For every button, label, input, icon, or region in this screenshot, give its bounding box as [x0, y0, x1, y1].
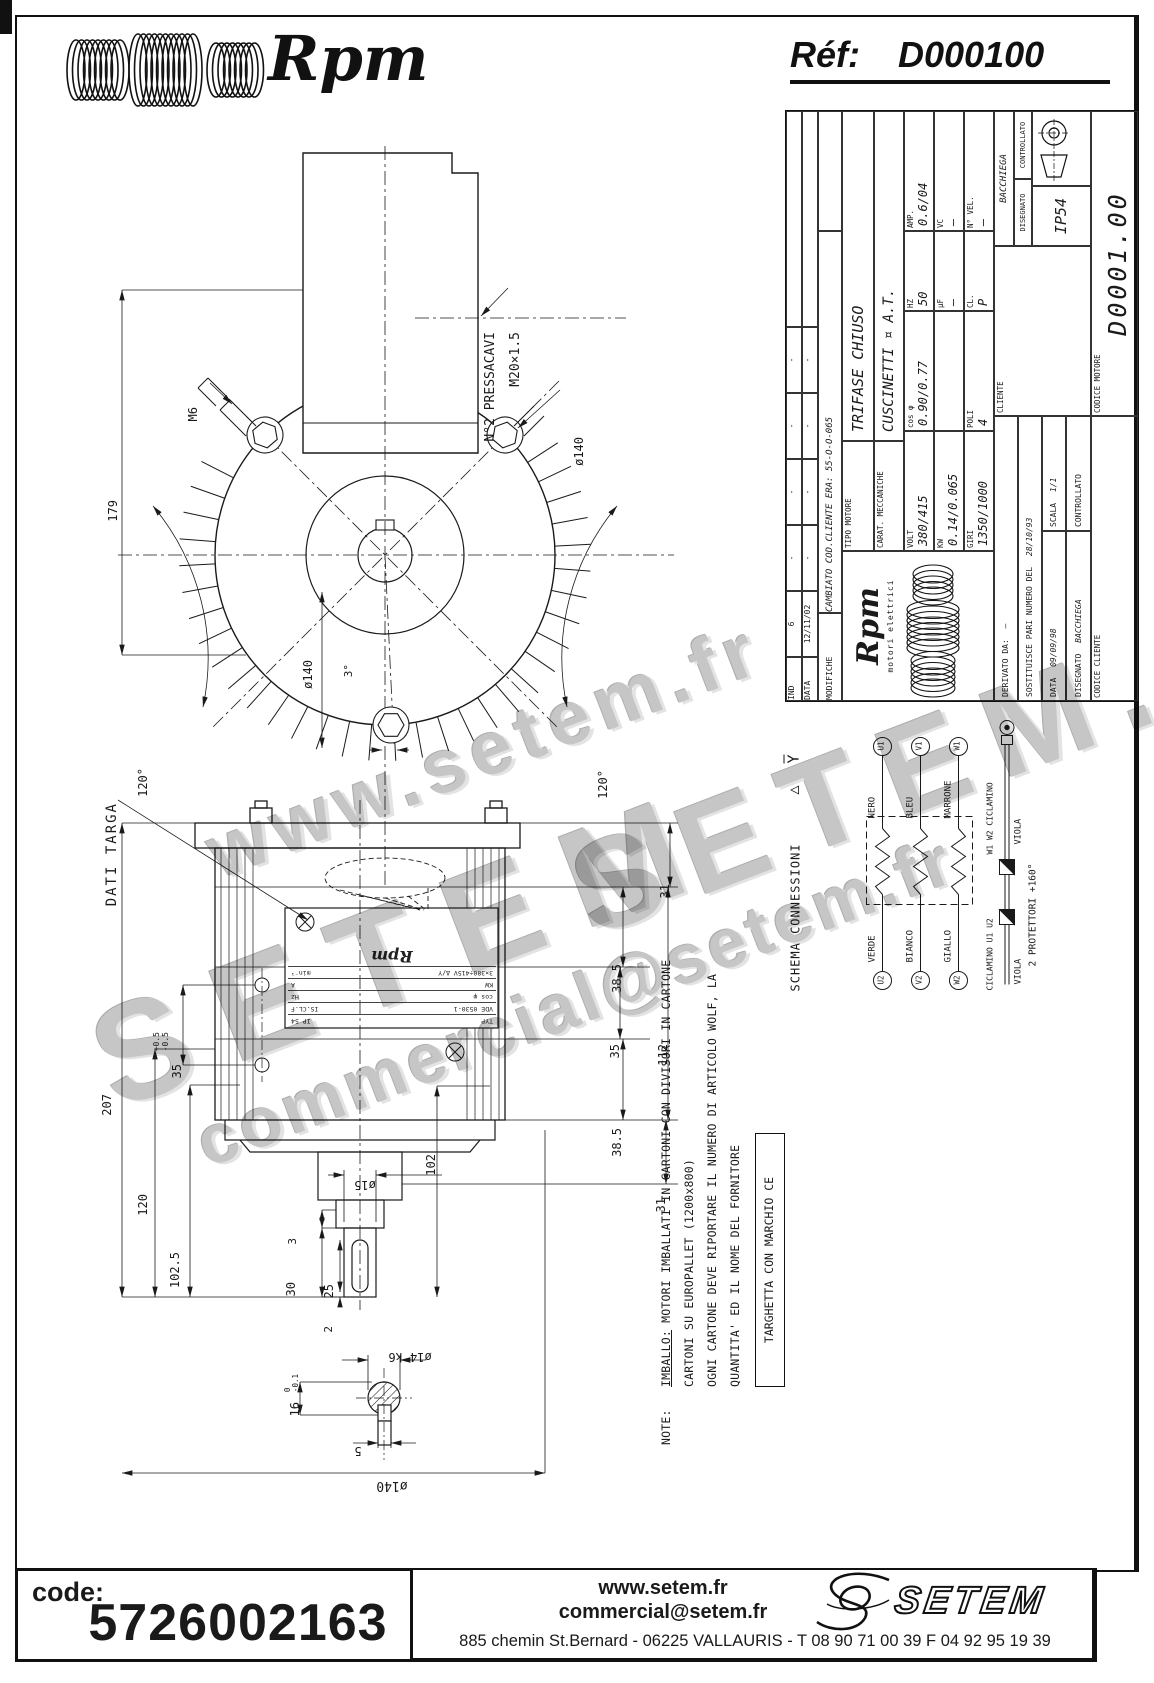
rev-empty: - — [786, 327, 802, 393]
giri-value: 1350/1000 — [976, 481, 990, 550]
amp-label: AMP. — [905, 112, 916, 230]
plate-cell: TYP — [481, 1016, 493, 1025]
rev-empty: - — [802, 525, 818, 591]
rev-empty-wide — [818, 111, 842, 231]
protector-caption: 2 PROTETTORI +160° — [1028, 864, 1039, 967]
pressacavi-label-1: N°2 PRESSACAVI — [483, 332, 498, 442]
dim-207: 207 — [100, 1094, 114, 1116]
codice-motore-label: CODICE MOTORE — [1092, 112, 1103, 415]
titleblock-coils-icon — [895, 560, 979, 700]
vc-value: — — [946, 219, 960, 230]
plate-cell: Hz — [291, 992, 299, 1001]
sostituisce-label: SOSTITUISCE PARI NUMERO DEL — [1025, 567, 1034, 697]
poli-value: 4 — [976, 419, 990, 430]
rev-empty: - — [802, 393, 818, 459]
footer-contact: www.setem.fr commercial@setem.fr SETEM 8… — [413, 1568, 1097, 1662]
code-box: code: 5726002163 — [15, 1568, 413, 1662]
note-boxed-ce: TARGHETTA CON MARCHIO CE — [755, 1133, 785, 1387]
rev-empty: - — [802, 327, 818, 393]
dim-dia14-k6: ø14 k6 — [372, 1350, 448, 1364]
terminal-u1: U1 — [877, 738, 886, 755]
wire-color-bianco: BIANCO — [906, 930, 916, 963]
dim-dia140-bottom: ø140 — [362, 1478, 422, 1493]
firma-controllato-label: CONTROLLATO — [1014, 111, 1032, 179]
sostituisce-value: 28/10/93 — [1025, 518, 1034, 563]
rev-empty-wide — [802, 111, 818, 327]
note-line-4: QUANTITA' ED IL NOME DEL FORNITORE — [728, 1145, 742, 1387]
dim-16-tol: 0 -0.1 — [284, 1374, 300, 1392]
ref-value: D000100 — [898, 34, 1044, 75]
tipo-label: TIPO MOTORE — [843, 442, 854, 550]
carat-value: CUSCINETTI ¤ A.T. — [874, 111, 904, 441]
ref-label: Réf: — [790, 34, 860, 75]
plate-cell: KW — [485, 980, 493, 989]
note-imballo-prefix: IMBALLO: — [659, 1330, 673, 1387]
dim-2: 2 — [322, 1326, 335, 1333]
poli-label: POLI — [965, 312, 976, 430]
titleblock-brand-sub: motori elettrici — [886, 552, 895, 700]
kw-label: KW — [935, 432, 946, 550]
cliente-label: CLIENTE — [995, 247, 1006, 415]
amp-value: 0.6/04 — [916, 183, 930, 230]
dim-120: 120 — [136, 1194, 150, 1216]
derivato-value: — — [1001, 624, 1010, 635]
scala-label: SCALA — [1049, 503, 1058, 527]
dim-35-tol: +0.5 -0.5 — [152, 1032, 170, 1051]
setem-logo-letters: SETEM — [892, 1580, 1049, 1623]
title-block: IND 6 - - - - DATA 12/11/02 - - - - MODI… — [785, 110, 1139, 702]
hz-value: 50 — [916, 292, 930, 310]
volt-label: VOLT — [905, 432, 916, 550]
note-line-1: IMBALLO: MOTORI IMBALLATI IN CARTONI CON… — [659, 960, 673, 1387]
rev-col-ind: IND — [786, 657, 802, 701]
derivato-label: DERIVATO DA: — [1001, 639, 1010, 697]
footer-address: 885 chemin St.Bernard - 06225 VALLAURIS … — [421, 1632, 1089, 1651]
scan-mark — [0, 0, 12, 34]
drawing-sheet: Rpm Réf: D000100 www.setem.fr SETEM comm… — [0, 0, 1154, 1683]
rev-mod-value: CAMBIATO COD.CLIENTE ERA: 55-O-O-065 — [818, 231, 842, 613]
spec-empty — [934, 311, 964, 431]
side-view-drawing — [90, 610, 690, 1500]
protector-left-label: CICLAMINO U1 U2 — [986, 918, 995, 990]
data-value: 09/09/98 — [1049, 628, 1058, 673]
ip-rating: IP54 — [1032, 186, 1091, 246]
h179-label: 179 — [106, 500, 120, 522]
cl-value: P — [976, 299, 990, 310]
plate-cell: VDE 0530-1 — [454, 1004, 493, 1013]
carat-label: CARAT. MECCANICHE — [875, 442, 886, 550]
motor-nameplate: TYPIP 54 VDE 0530-1IS.CL.F cos φHz KWA 3… — [288, 910, 496, 1026]
reference-block: Réf: D000100 — [790, 34, 1110, 84]
wire-color-giallo: GIALLO — [944, 930, 954, 963]
notes-block: NOTE: IMBALLO: MOTORI IMBALLATI IN CARTO… — [655, 968, 800, 1445]
plate-cell: IS.CL.F — [291, 1004, 318, 1013]
nvel-value: — — [976, 219, 990, 230]
code-value: 5726002163 — [73, 1593, 403, 1653]
cl-label: CL. — [965, 232, 976, 310]
delta-icon: △ — [785, 785, 803, 794]
dim-30: 30 — [284, 1282, 298, 1296]
dati-targa-label: DATI TARGA — [104, 802, 120, 906]
note-line-2: CARTONI SU EUROPALLET (1200x800) — [682, 1159, 696, 1387]
brand-logo-text: Rpm — [268, 22, 428, 95]
setem-swoosh-icon — [803, 1572, 903, 1634]
titleblock-logo-cell: Rpm motori elettrici — [842, 551, 994, 701]
note-line-3: OGNI CARTONE DEVE RIPORTARE IL NUMERO DI… — [705, 974, 719, 1387]
tipo-value: TRIFASE CHIUSO — [842, 111, 874, 441]
dim-16: 16 — [288, 1402, 302, 1416]
plate-cell: cos φ — [473, 992, 493, 1001]
wire-color-bleu: BLEU — [906, 797, 916, 819]
footer-web: www.setem.fr — [533, 1576, 793, 1600]
wire-color-verde: VERDE — [868, 935, 878, 962]
controllato-label: CONTROLLATO — [1066, 416, 1091, 531]
cos-label: cos φ — [905, 312, 916, 430]
connection-schema: SCHEMA CONNESSIONI △ Y U2 V2 W2 U1 V1 W1… — [783, 700, 1045, 995]
protector-viola-right: VIOLA — [1014, 819, 1024, 845]
dim-102: 102 — [424, 1154, 438, 1176]
rev-empty: - — [786, 525, 802, 591]
dim-35-r: 35 — [608, 1044, 622, 1058]
uf-label: µF — [935, 232, 946, 310]
titleblock-brand: Rpm — [851, 552, 886, 700]
kw-value: 0.14/0.065 — [946, 474, 960, 550]
footer-email: commercial@setem.fr — [533, 1600, 793, 1624]
wire-color-nero: NERO — [868, 797, 878, 819]
rev-col-data: DATA — [802, 657, 818, 701]
plate-logo: Rpm — [288, 947, 496, 966]
dim-31-top: 31 — [658, 884, 672, 898]
rev-empty: - — [802, 459, 818, 525]
vc-label: VC — [935, 112, 946, 230]
wire-color-marrone: MARRONE — [944, 781, 954, 819]
rev-empty-wide — [786, 111, 802, 327]
dim-5: 5 — [348, 1444, 368, 1458]
dim-38-5-a: 38.5 — [610, 964, 624, 993]
codice-motore-value: D0001.00 — [1103, 112, 1132, 415]
rpm-coils-logo — [60, 28, 270, 112]
projection-symbol-cell — [1032, 111, 1091, 186]
dim-dia15: ø15 — [342, 1178, 388, 1192]
note-line-1-rest: MOTORI IMBALLATI IN CARTONI CON DIVISORI… — [659, 960, 673, 1330]
rev-empty: - — [786, 393, 802, 459]
firma-nome: BACCHIEGA — [994, 111, 1014, 246]
rev-ind-value: 6 — [786, 591, 802, 657]
protector-viola-left: VIOLA — [1014, 959, 1024, 985]
giri-label: GIRI — [965, 432, 976, 550]
codice-cliente-label: CODICE CLIENTE — [1092, 417, 1103, 700]
uf-value: — — [946, 299, 960, 310]
m6-label: M6 — [186, 407, 200, 421]
cos-value: 0.90/0.77 — [916, 361, 930, 430]
terminal-v2: V2 — [915, 972, 924, 989]
disegnato-label: DISEGNATO — [1074, 654, 1083, 697]
first-angle-projection-icon — [1033, 112, 1090, 185]
wye-icon: Y — [785, 754, 803, 763]
terminal-u2: U2 — [877, 972, 886, 989]
plate-cell: A — [291, 980, 295, 989]
terminal-v1: V1 — [915, 738, 924, 755]
plate-cell: 3×380÷415V Δ/Y — [438, 968, 493, 977]
notes-label: NOTE: — [659, 1409, 673, 1445]
dim-25: 25 — [322, 1284, 336, 1298]
firma-disegnato-label: DISEGNATO — [1014, 179, 1032, 246]
dia140-leader-label: ø140 — [572, 437, 586, 466]
volt-value: 380/415 — [916, 495, 930, 550]
rev-date-value: 12/11/02 — [802, 591, 818, 657]
dim-3: 3 — [286, 1238, 299, 1245]
nvel-label: N° VEL. — [965, 112, 976, 230]
plate-cell: IP 54 — [291, 1016, 311, 1025]
disegnato-value: BACCHIEGA — [1074, 599, 1083, 648]
protector-right-label: W1 W2 CICLAMINO — [986, 782, 995, 854]
hz-label: HZ — [905, 232, 916, 310]
rev-col-mod: MODIFICHE — [818, 613, 842, 701]
terminal-w1: W1 — [953, 738, 962, 755]
setem-logo-text: SETEM — [895, 1580, 1046, 1623]
data-label: DATA — [1049, 678, 1058, 697]
dim-102-5: 102.5 — [168, 1252, 182, 1288]
plate-cell: min⁻¹ — [291, 968, 311, 977]
dim-35: 35 — [170, 1064, 184, 1078]
dim-38-5-b: 38.5 — [610, 1128, 624, 1157]
pressacavi-label-2: M20×1.5 — [508, 332, 523, 387]
scala-value: 1/1 — [1049, 478, 1058, 498]
rev-empty: - — [786, 459, 802, 525]
terminal-w2: W2 — [953, 972, 962, 989]
